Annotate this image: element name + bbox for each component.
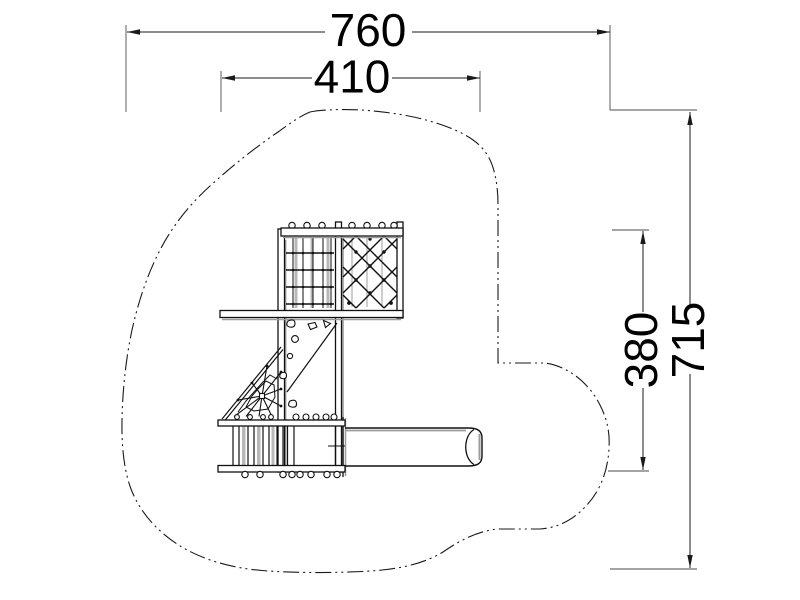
dimension-equipment-height: 380	[608, 230, 667, 471]
platform	[220, 311, 403, 320]
dimension-equipment-width: 410	[221, 51, 480, 113]
dimensions: 760 410 715 380	[126, 4, 714, 569]
square-net-panel	[286, 238, 334, 308]
arrowhead-bottom	[687, 555, 692, 568]
play-structure	[218, 222, 482, 478]
dimension-label-total-height: 715	[662, 302, 714, 379]
climbing-holds	[280, 320, 331, 407]
base-top-beam	[218, 420, 345, 426]
tube-opening	[466, 430, 474, 465]
ramp-edge	[287, 323, 337, 392]
arrowhead-bottom	[640, 457, 645, 470]
arrowhead-right	[597, 29, 610, 34]
arrowhead-left	[222, 75, 235, 80]
arrowhead-top	[640, 231, 645, 244]
arrowhead-top	[687, 112, 692, 125]
middle-post	[336, 222, 344, 472]
dimension-label-equipment-height: 380	[615, 312, 667, 389]
safety-zone-outline	[122, 110, 609, 573]
arrowhead-left	[127, 29, 140, 34]
spider-web-net	[222, 347, 283, 422]
dimension-label-equipment-width: 410	[314, 51, 391, 103]
safety-zone-boundary	[122, 110, 609, 573]
web-hub	[260, 394, 265, 399]
technical-drawing-canvas: 760 410 715 380	[0, 0, 800, 600]
web-spokes	[234, 366, 281, 417]
arrowhead-right	[467, 75, 480, 80]
dimension-label-total-width: 760	[330, 4, 407, 56]
climbing-wall	[280, 320, 337, 407]
crawl-tube	[345, 428, 482, 466]
diagonal-net-panel	[343, 236, 397, 308]
playground-elevation-drawing: 760 410 715 380	[0, 0, 800, 600]
